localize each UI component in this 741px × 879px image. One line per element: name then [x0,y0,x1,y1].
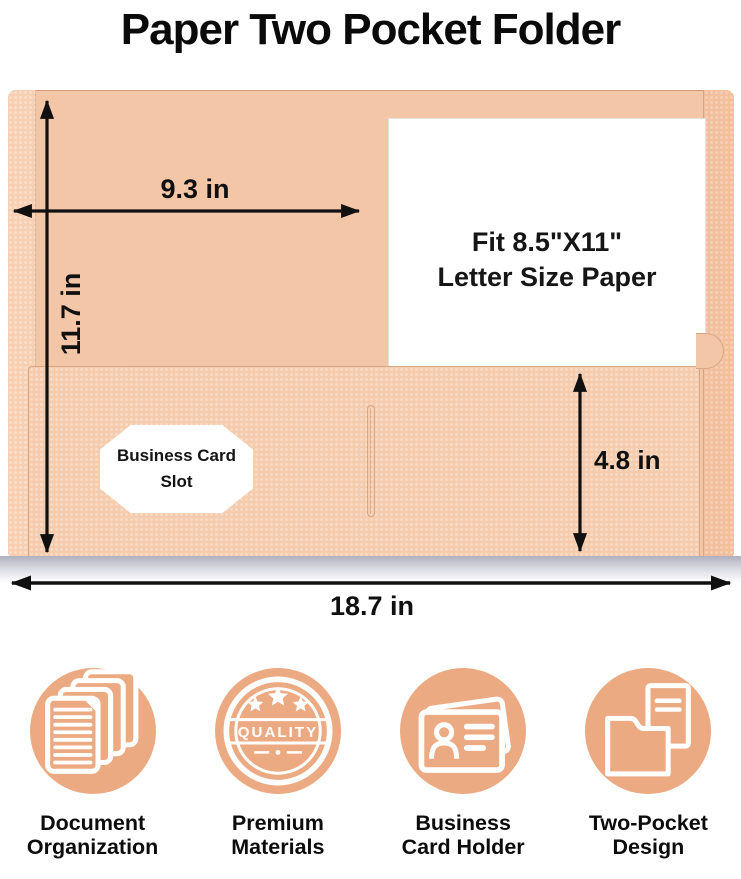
folder-right-tab [703,90,734,558]
feature-label: Business Card Holder [402,811,525,860]
folder-diagram: Fit 8.5"X11" Letter Size Paper Business … [0,85,741,630]
business-card-icon [400,668,526,794]
pen-slot [367,405,375,517]
bottom-width-dimension-label: 18.7 in [330,591,414,621]
stacked-documents-icon [30,668,156,794]
card-slot-label-line1: Business Card [117,443,236,469]
quality-badge-icon: QUALITY [215,668,341,794]
card-slot-label-line2: Slot [160,469,192,495]
page-title: Paper Two Pocket Folder [0,0,741,62]
feature-label: Document Organization [27,811,158,860]
feature-premium-materials: QUALITY Premium Materials [185,668,370,860]
feature-two-pocket-design: Two-Pocket Design [556,668,741,860]
letter-paper: Fit 8.5"X11" Letter Size Paper [388,118,706,368]
two-pocket-folder-icon [585,668,711,794]
feature-document-organization: Document Organization [0,668,185,860]
paper-label-line2: Letter Size Paper [437,260,656,295]
feature-label: Premium Materials [231,811,324,860]
badge-text: QUALITY [238,724,318,741]
feature-label: Two-Pocket Design [589,811,708,860]
paper-label-line1: Fit 8.5"X11" [472,225,622,260]
folder-shadow [0,556,741,583]
business-card-slot: Business Card Slot [100,425,253,513]
feature-business-card-holder: Business Card Holder [371,668,556,860]
feature-list: Document Organization QUALITY [0,668,741,860]
product-infographic: Paper Two Pocket Folder Fit 8.5"X11" Let… [0,0,741,879]
